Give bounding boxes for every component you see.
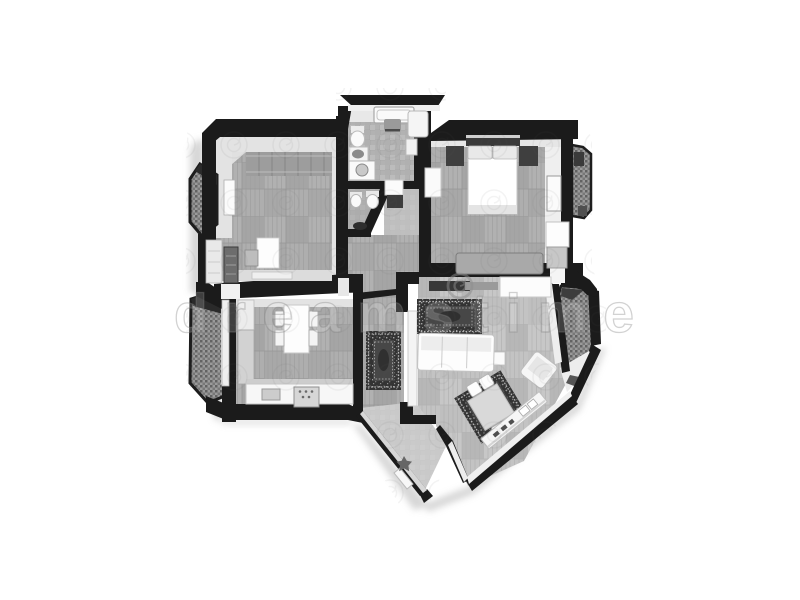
svg-text:dreamstime: dreamstime [174,282,636,344]
